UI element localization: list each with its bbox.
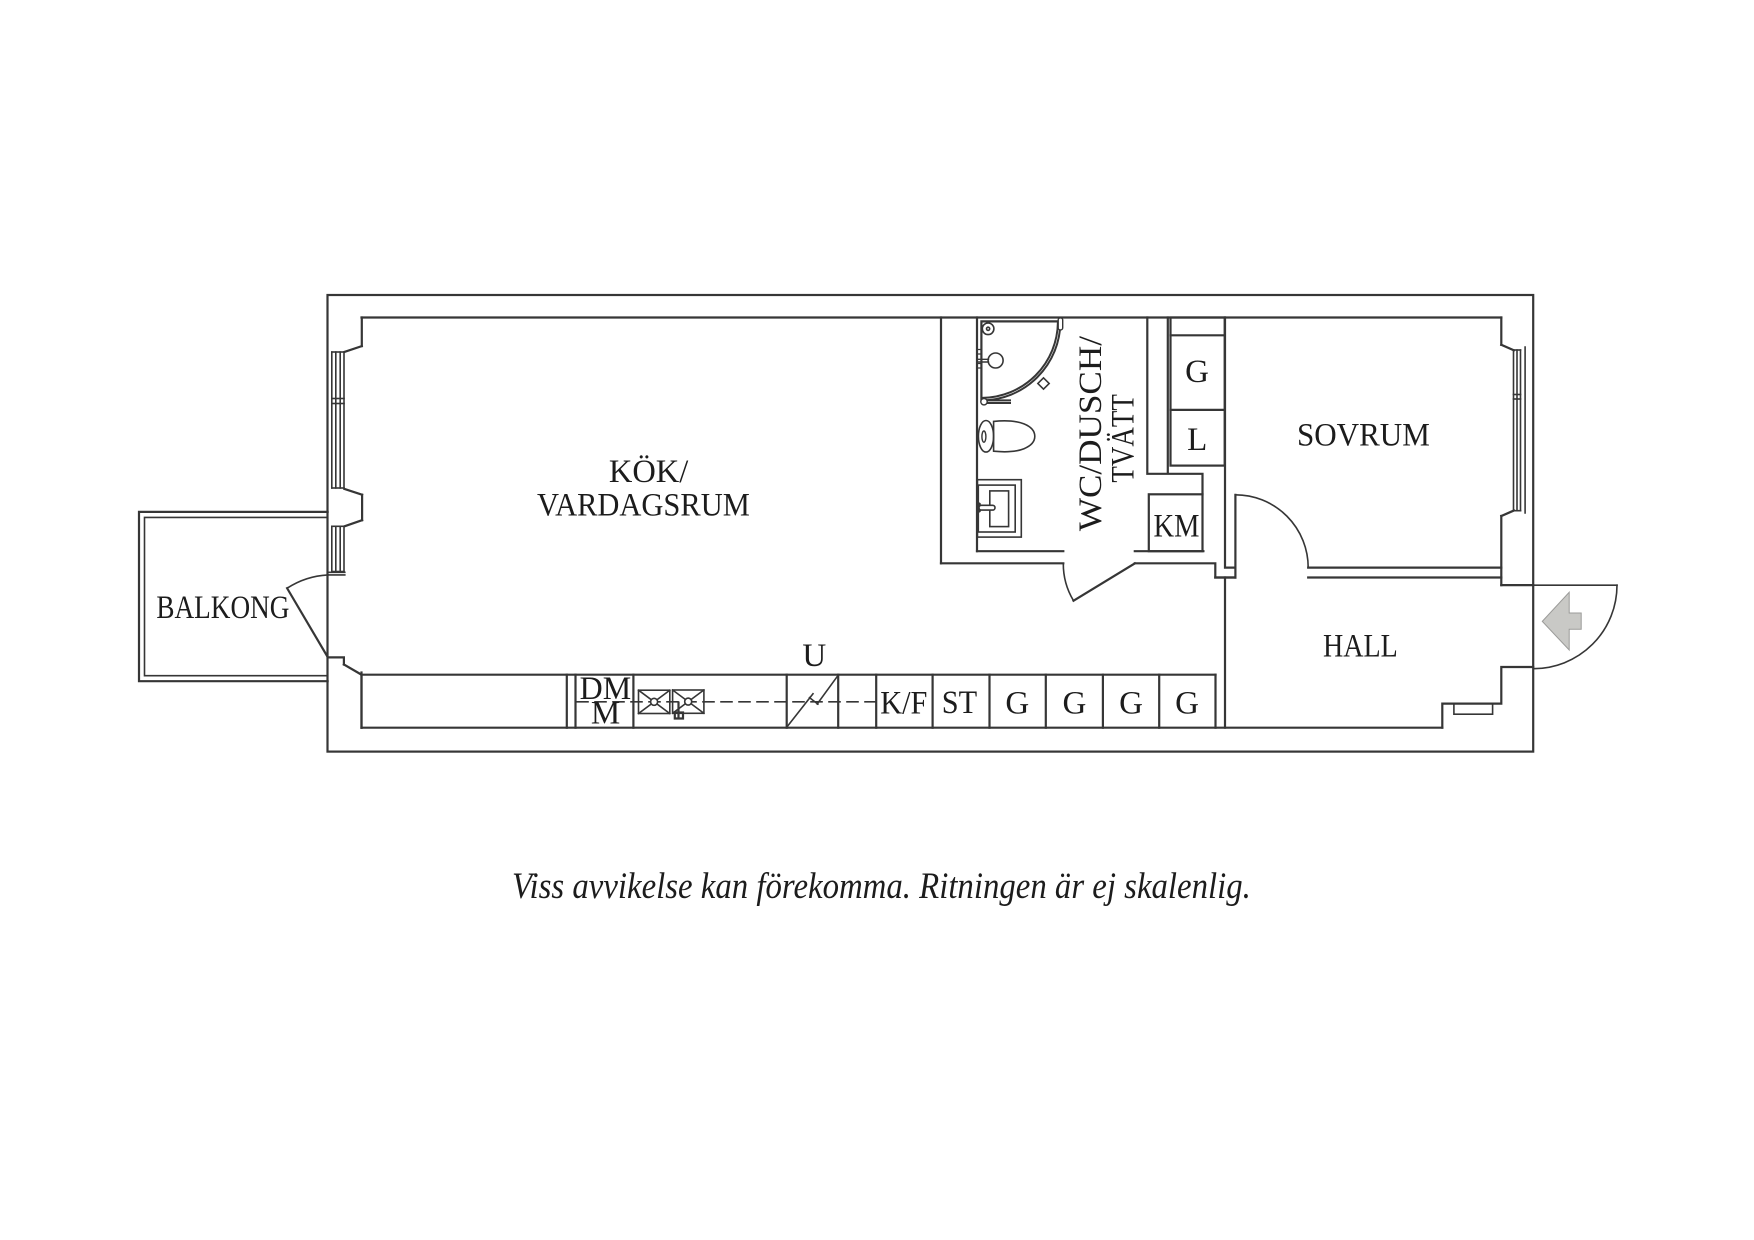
- svg-text:L: L: [1187, 422, 1207, 458]
- svg-text:SOVRUM: SOVRUM: [1297, 417, 1430, 453]
- svg-text:TVÄTT: TVÄTT: [1106, 394, 1142, 482]
- svg-text:G: G: [1119, 685, 1143, 721]
- svg-text:VARDAGSRUM: VARDAGSRUM: [537, 488, 750, 524]
- svg-text:BALKONG: BALKONG: [156, 590, 289, 626]
- svg-text:U: U: [802, 638, 826, 674]
- svg-text:Viss avvikelse kan förekomma.: Viss avvikelse kan förekomma. Ritningen …: [512, 865, 1251, 906]
- svg-text:HALL: HALL: [1323, 628, 1398, 664]
- svg-text:G: G: [1062, 685, 1086, 721]
- svg-text:M: M: [591, 695, 620, 731]
- svg-text:KM: KM: [1154, 509, 1200, 545]
- svg-text:G: G: [1185, 354, 1209, 390]
- svg-text:KÖK/: KÖK/: [609, 454, 689, 490]
- svg-text:G: G: [1005, 685, 1029, 721]
- svg-text:WC/DUSCH/: WC/DUSCH/: [1073, 335, 1109, 531]
- svg-text:K/F: K/F: [880, 685, 927, 721]
- svg-text:G: G: [1175, 685, 1199, 721]
- svg-text:ST: ST: [942, 685, 977, 721]
